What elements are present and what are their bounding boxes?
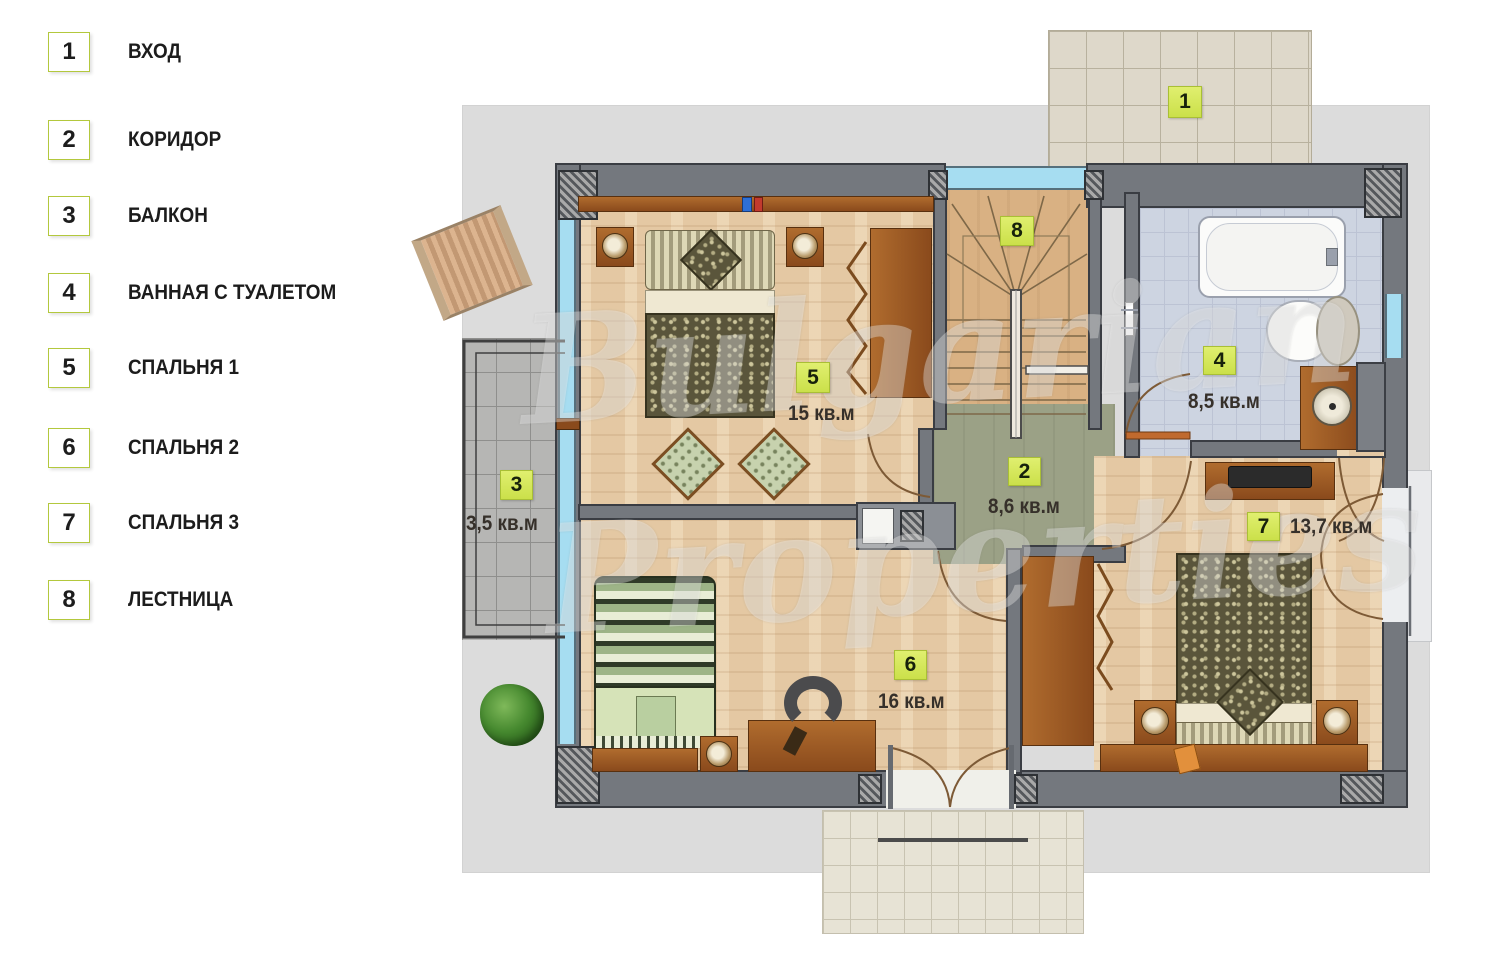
bedroom1-door-arc xyxy=(868,434,930,497)
plan-linework xyxy=(0,0,1500,977)
bathroom-door-arc xyxy=(1126,374,1190,434)
stairs-stringer xyxy=(1011,290,1088,438)
bedroom2-door-arc xyxy=(938,551,1006,621)
bathroom-door-leaf xyxy=(1126,432,1190,439)
wardrobe-rail-b3 xyxy=(1098,564,1112,690)
badge-entrance: 1 xyxy=(1168,86,1202,118)
badge-bedroom3-num: 7 xyxy=(1258,515,1270,539)
badge-bedroom2-num: 6 xyxy=(905,653,917,677)
badge-bedroom1-num: 5 xyxy=(807,366,819,390)
badge-stairs-num: 8 xyxy=(1011,219,1023,243)
towel-radiator-ticks xyxy=(1121,310,1138,328)
area-bedroom2: 16 кв.м xyxy=(878,690,945,714)
area-bathroom: 8,5 кв.м xyxy=(1188,390,1260,414)
badge-corridor: 2 xyxy=(1008,457,1041,486)
badge-balcony-num: 3 xyxy=(511,473,523,497)
badge-bedroom1: 5 xyxy=(796,362,830,393)
badge-stairs: 8 xyxy=(1000,216,1034,246)
badge-bedroom2: 6 xyxy=(894,650,927,680)
area-bedroom1: 15 кв.м xyxy=(788,402,855,426)
badge-entrance-num: 1 xyxy=(1179,90,1191,114)
area-corridor: 8,6 кв.м xyxy=(988,495,1060,519)
area-balcony: 3,5 кв.м xyxy=(466,512,538,536)
stairs-railing xyxy=(1026,366,1088,374)
badge-balcony: 3 xyxy=(500,470,533,500)
wardrobe-rail-b1 xyxy=(848,242,866,394)
badge-bedroom3: 7 xyxy=(1247,512,1280,541)
terrace-door-arc-b xyxy=(950,748,1010,807)
badge-bathroom-num: 4 xyxy=(1214,349,1226,373)
badge-corridor-num: 2 xyxy=(1019,460,1031,484)
french-door-arc-b xyxy=(1321,556,1383,619)
terrace-door-arc-a xyxy=(892,748,950,807)
bedroom3-door-arc xyxy=(1102,461,1191,549)
area-bedroom3: 13,7 кв.м xyxy=(1290,515,1372,539)
badge-bathroom: 4 xyxy=(1203,346,1236,375)
